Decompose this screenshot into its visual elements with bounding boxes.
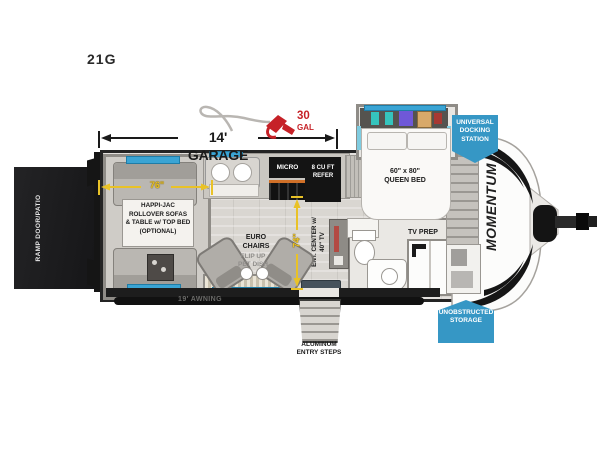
tv-screen [334, 226, 339, 252]
pillow [367, 132, 407, 150]
garage-dimension-label: 14' GARAGE [178, 129, 258, 164]
hitch-coupler [576, 213, 589, 230]
shelf-item [399, 111, 413, 126]
fuel-capacity-unit: GAL [297, 123, 314, 132]
prep-counter [209, 184, 259, 197]
storage-bin [451, 249, 467, 266]
entry-steps [298, 299, 342, 343]
shelf-item [371, 112, 379, 125]
model-number: 21G [87, 51, 116, 67]
euro-chairs-label: EURO CHAIRS [228, 234, 284, 252]
fuel-hose-icon [200, 107, 270, 131]
cooktop [269, 180, 306, 200]
sink-bowl [233, 163, 252, 182]
garage-dim-arrow-left [101, 134, 111, 142]
shelf-item [417, 111, 432, 128]
front-storage-shelves [446, 244, 481, 294]
floorplan-canvas: 21G RAMP DOOR/PATIO HAPPI-JAC ROLLOVER S… [0, 0, 600, 450]
sofa-width-label: 76" [144, 180, 170, 191]
entry-door [299, 288, 339, 297]
cabinet-shelf [334, 256, 343, 265]
queen-bed-label: 60" x 80" QUEEN BED [366, 168, 444, 186]
pet-dish-label: FLIP UP PET DISH [227, 253, 279, 269]
ramp-door-patio: RAMP DOOR/PATIO [14, 167, 96, 289]
propane-cover [533, 205, 557, 242]
hitch-tube [555, 216, 577, 228]
sink-bowl [211, 163, 230, 182]
brand-logo: MOMENTUM [483, 163, 499, 251]
awning-label: 19' AWNING [168, 296, 232, 305]
coupler-tip [588, 216, 597, 227]
fuel-capacity-value: 30 [297, 110, 310, 122]
awning-bar [114, 297, 424, 305]
ramp-door-label: RAMP DOOR/PATIO [35, 168, 45, 288]
shelf-item [385, 112, 393, 125]
vanity-sink [381, 268, 398, 285]
shower-head-icon [412, 248, 416, 257]
entertainment-center-cabinet [329, 219, 349, 269]
shower-glass [429, 241, 431, 294]
shelf-item [434, 113, 442, 124]
table-dot [161, 267, 166, 272]
pantry-cabinet [345, 155, 362, 198]
microwave: MICRO [269, 157, 306, 178]
fuel-nozzle-icon [266, 115, 295, 137]
storage-bin [451, 271, 473, 288]
tv-prep-label: TV PREP [404, 229, 442, 238]
pet-dish [240, 267, 253, 280]
interior-length-label: 74" [291, 228, 302, 254]
refrigerator: 8 CU FT REFER [305, 157, 341, 202]
garage-window-top [126, 156, 180, 164]
garage-dim-arrow-right [325, 134, 335, 142]
garage-table [147, 254, 174, 281]
sofa-cushion [114, 163, 196, 179]
pet-dish [256, 267, 269, 280]
pillow [407, 132, 447, 150]
entry-steps-label: ALUMINUM ENTRY STEPS [287, 341, 351, 357]
table-dot [152, 260, 157, 265]
bottom-wall [106, 288, 440, 297]
happijac-sofas-label: HAPPI-JAC ROLLOVER SOFAS & TABLE w/ TOP … [122, 199, 194, 247]
